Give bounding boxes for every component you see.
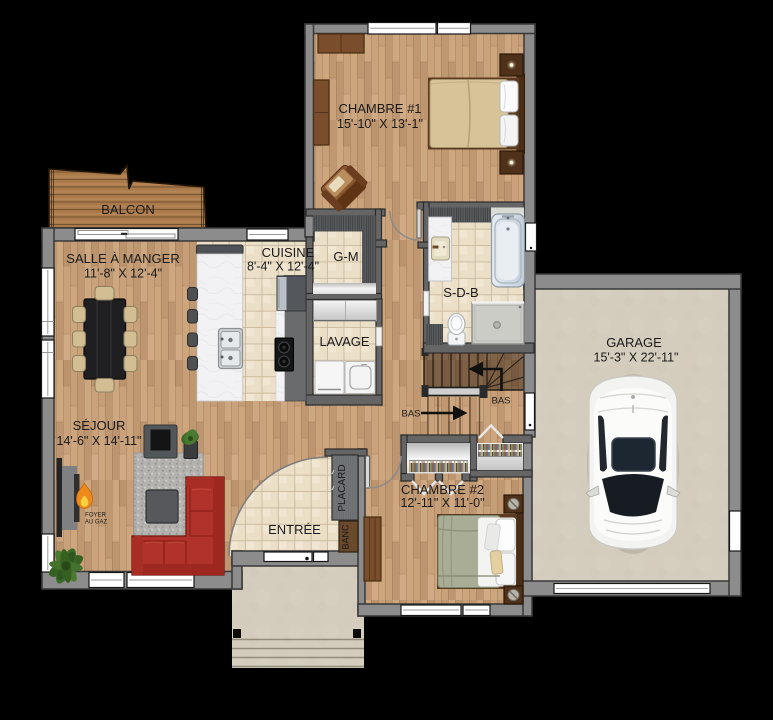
svg-text:14'-6" X 14'-11": 14'-6" X 14'-11" (57, 434, 142, 448)
svg-text:GARAGE: GARAGE (606, 335, 662, 350)
svg-text:S-D-B: S-D-B (443, 285, 478, 300)
svg-text:FOYER: FOYER (85, 513, 106, 519)
svg-text:CHAMBRE #1: CHAMBRE #1 (338, 101, 421, 116)
svg-text:BALCON: BALCON (101, 202, 154, 217)
svg-text:15'-3" X 22'-11": 15'-3" X 22'-11" (594, 351, 679, 365)
svg-text:AU GAZ: AU GAZ (85, 520, 108, 526)
svg-text:CUISINE: CUISINE (262, 245, 315, 260)
svg-text:11'-8" X 12'-4": 11'-8" X 12'-4" (84, 267, 162, 281)
svg-text:BAS: BAS (491, 396, 510, 407)
svg-text:BANC: BANC (341, 524, 351, 550)
svg-text:15'-10" X 13'-1": 15'-10" X 13'-1" (337, 117, 423, 131)
svg-text:LAVAGE: LAVAGE (319, 334, 369, 349)
svg-text:SÉJOUR: SÉJOUR (73, 418, 126, 433)
svg-text:12'-11" X 11'-0": 12'-11" X 11'-0" (400, 496, 484, 510)
svg-text:BAS: BAS (401, 409, 420, 420)
svg-text:SALLE À MANGER: SALLE À MANGER (66, 251, 179, 266)
svg-text:CHAMBRE #2: CHAMBRE #2 (401, 482, 484, 497)
svg-text:PLACARD: PLACARD (337, 464, 348, 511)
svg-text:G-M: G-M (333, 249, 358, 264)
svg-text:8'-4" X 12'-4": 8'-4" X 12'-4" (247, 260, 319, 274)
svg-text:ENTRÉE: ENTRÉE (268, 522, 321, 537)
